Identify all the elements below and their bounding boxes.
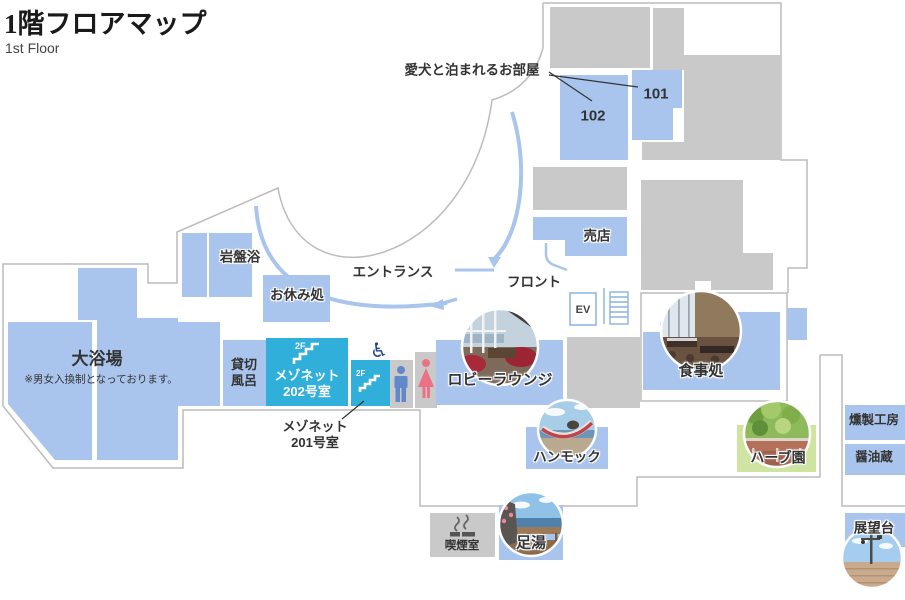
room-101-label: 101 (643, 86, 668, 105)
stairwell-icon (604, 288, 628, 324)
small-room-right-of-dining (787, 308, 807, 340)
bath-shape-right (137, 322, 220, 406)
bath-shape-top (78, 268, 137, 320)
maisonette-202-label: メゾネット202号室 (274, 368, 339, 401)
wheelchair-icon: ♿ (370, 340, 388, 362)
floor-map: 2F 2F EV ♿ (0, 0, 905, 600)
floor-tag-201: 2F (356, 369, 365, 378)
page-title: 1階フロアマップ (4, 2, 207, 41)
block-back-of-house-5 (641, 180, 773, 290)
rest-area-label: お休み処 (270, 288, 324, 305)
block-back-of-house-1 (550, 7, 650, 68)
elevator-label: EV (576, 304, 591, 316)
large-bath-label: 大浴場 (72, 348, 123, 369)
smoking-room-label: 喫煙室 (445, 539, 480, 553)
block-back-of-house-4 (642, 142, 781, 160)
front-desk-label: フロント (507, 275, 561, 292)
herb-garden-label: ハーブ園 (750, 449, 805, 467)
hammock-label: ハンモック (533, 450, 601, 467)
page-subtitle: 1st Floor (5, 40, 59, 56)
foot-bath-label: 足湯 (516, 535, 546, 554)
room-101-shape (632, 70, 682, 140)
shop-label: 売店 (584, 229, 611, 246)
maisonette-201-label: メゾネット201号室 (282, 419, 347, 452)
entrance-curve-right (494, 112, 521, 259)
private-bath-label: 貸切風呂 (231, 357, 257, 390)
stone-sauna-shape-1 (182, 233, 207, 297)
dog-room-annotation: 愛犬と泊まれるお部屋 (405, 63, 540, 80)
bath-shape-left (8, 322, 92, 460)
shop-notch (533, 240, 565, 256)
soy-warehouse-label: 醤油蔵 (855, 450, 893, 466)
dining-label: 食事処 (678, 363, 723, 382)
large-bath-note: ※男女入換制となっております。 (24, 373, 178, 386)
entrance-door-marker (488, 257, 501, 268)
smokehouse-label: 燻製工房 (849, 413, 899, 429)
block-back-of-house-2 (653, 8, 684, 70)
room-102-label: 102 (580, 108, 605, 127)
block-right-of-lobby (567, 337, 640, 408)
observation-deck-label: 展望台 (854, 521, 895, 538)
block-above-shop (533, 167, 627, 210)
stone-sauna-label: 岩盤浴 (220, 250, 261, 267)
floor-tag-202: 2F (295, 341, 306, 351)
floor-map-graphic: 2F 2F EV ♿ (0, 0, 905, 600)
entrance-label: エントランス (353, 265, 434, 282)
lobby-lounge-label: ロビーラウンジ (447, 372, 552, 391)
